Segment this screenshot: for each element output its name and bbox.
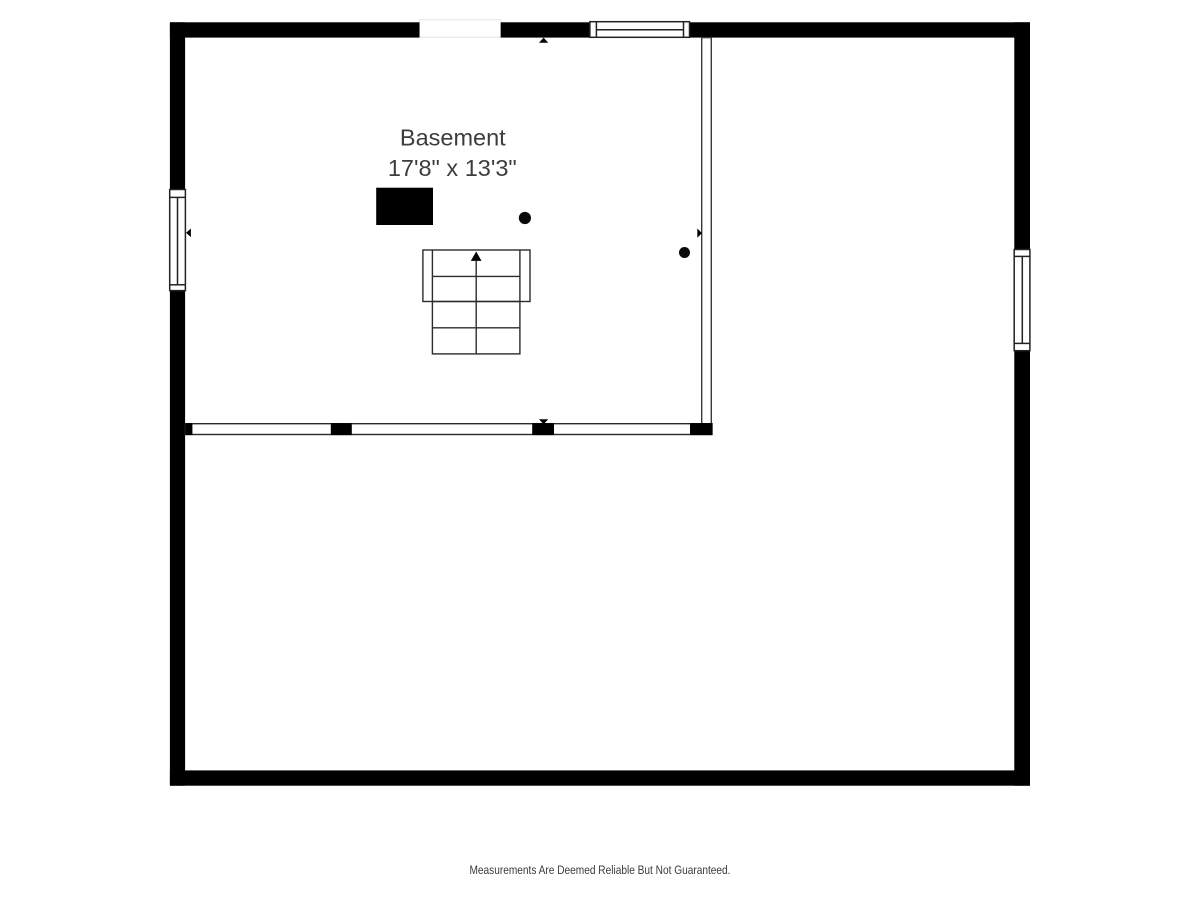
svg-text:17'8" x 13'3": 17'8" x 13'3" xyxy=(388,155,517,181)
svg-text:Measurements Are Deemed Reliab: Measurements Are Deemed Reliable But Not… xyxy=(470,863,731,877)
svg-text:Basement: Basement xyxy=(400,125,506,151)
